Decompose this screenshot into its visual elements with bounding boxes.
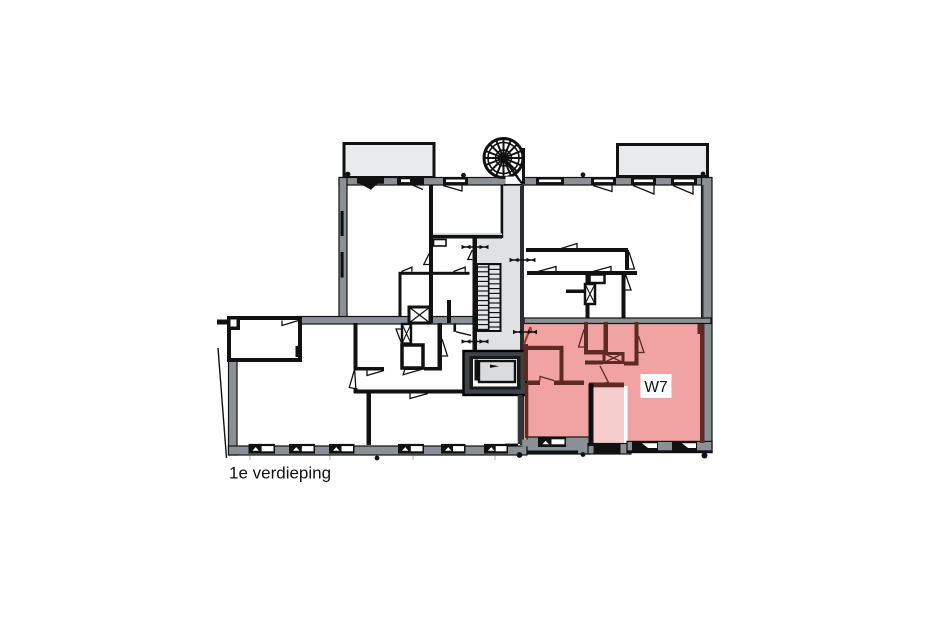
svg-text:W7: W7 <box>644 379 667 396</box>
svg-text:1e verdieping: 1e verdieping <box>229 464 331 483</box>
